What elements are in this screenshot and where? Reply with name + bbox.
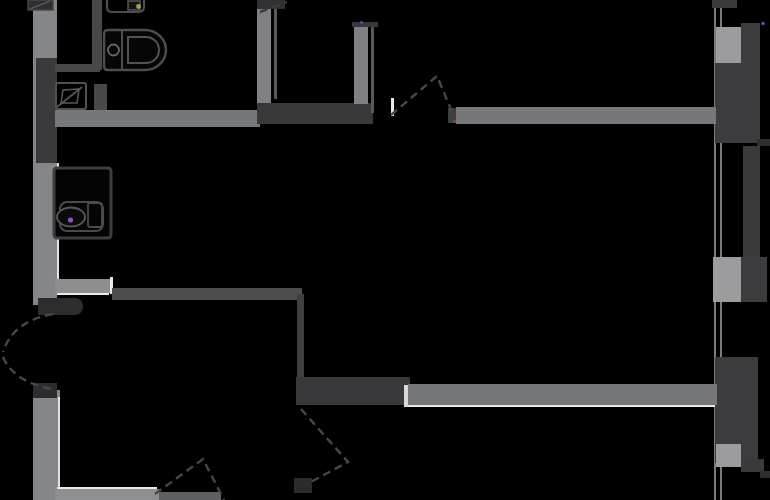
speck-blue-niche	[360, 21, 363, 24]
entry-door-swing-top	[3, 314, 53, 352]
entry-door-swing-bottom	[3, 357, 51, 389]
speck-green-bottom	[165, 496, 168, 499]
wardrobe-door-swing	[301, 409, 348, 484]
speck-blue-facade	[761, 22, 765, 26]
interior-door-swing-top	[391, 76, 452, 115]
faucet-marker-purple	[68, 217, 73, 222]
floor-plan-overlay	[0, 0, 770, 500]
bottom-door-swing-peak	[155, 459, 224, 500]
faucet-marker-yellow	[136, 4, 141, 9]
floor-plan-image	[0, 0, 770, 500]
speck-red-door	[453, 120, 456, 123]
vanity-bowl	[57, 208, 85, 227]
top-edge-door-swing	[260, 2, 287, 12]
